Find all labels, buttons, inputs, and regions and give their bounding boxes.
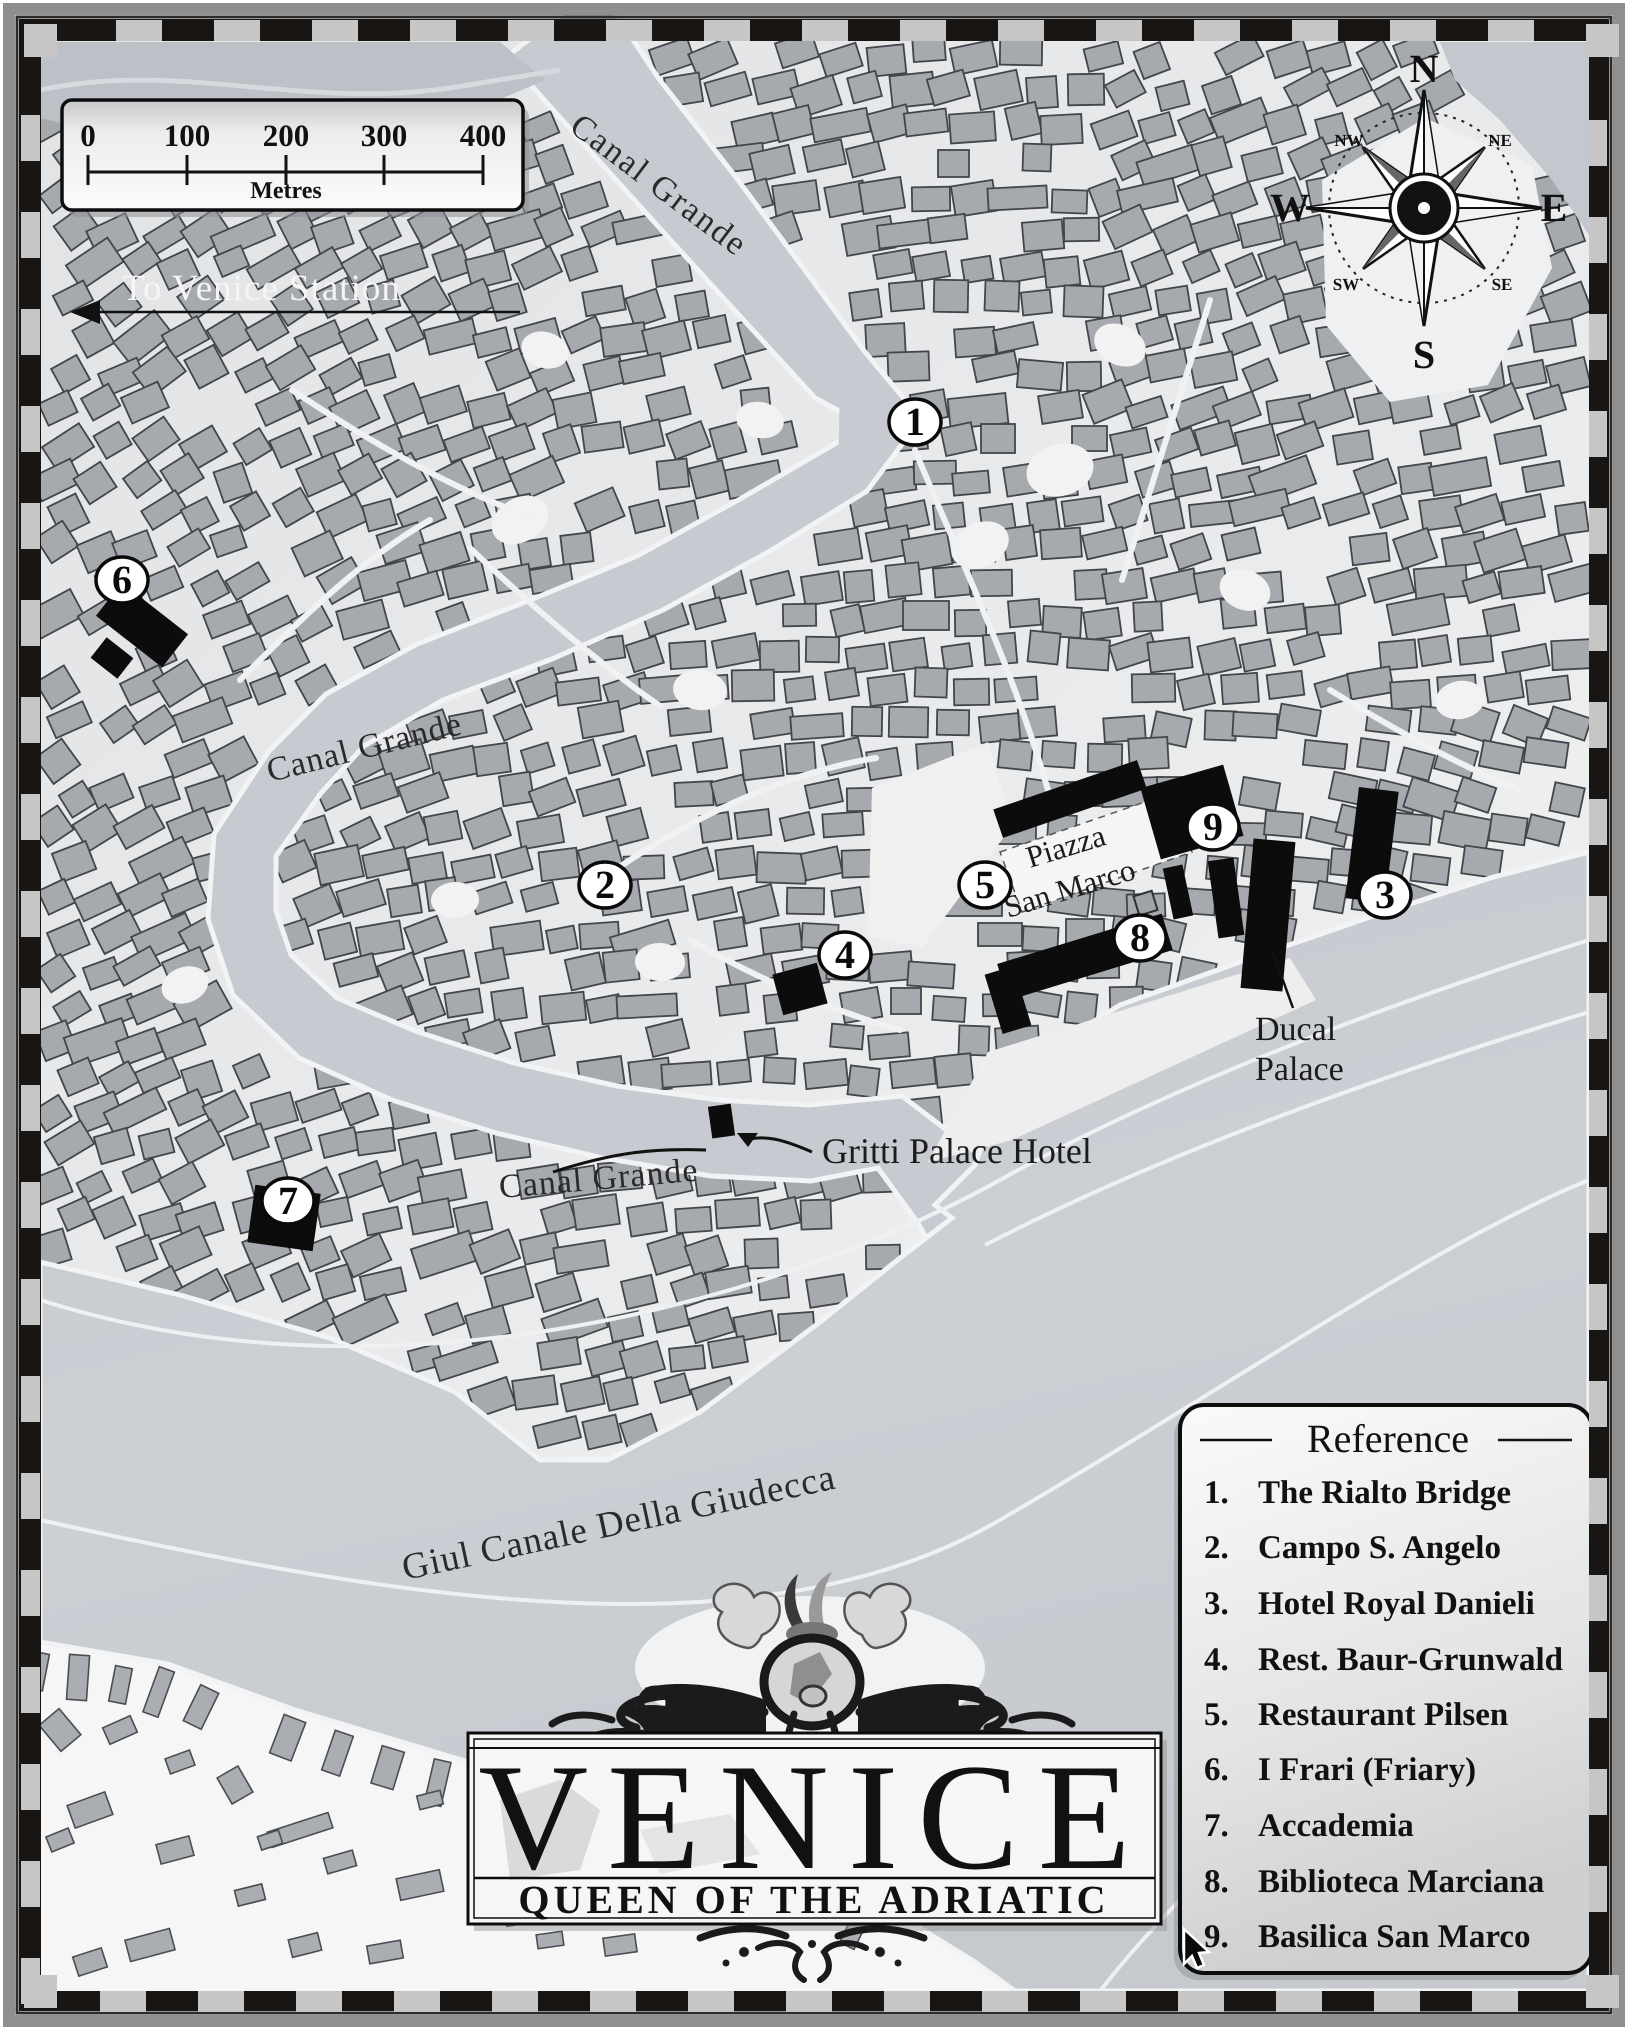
svg-text:6: 6 bbox=[112, 557, 132, 602]
svg-text:SE: SE bbox=[1492, 275, 1513, 294]
svg-text:Basilica San Marco: Basilica San Marco bbox=[1258, 1919, 1531, 1955]
svg-text:200: 200 bbox=[263, 118, 310, 153]
svg-text:Hotel Royal Danieli: Hotel Royal Danieli bbox=[1258, 1586, 1535, 1622]
svg-text:NW: NW bbox=[1334, 131, 1363, 150]
svg-text:9: 9 bbox=[1203, 804, 1223, 849]
svg-text:1.: 1. bbox=[1204, 1475, 1229, 1511]
svg-text:Accademia: Accademia bbox=[1258, 1808, 1414, 1844]
svg-text:Restaurant Pilsen: Restaurant Pilsen bbox=[1258, 1697, 1508, 1733]
svg-text:3: 3 bbox=[1375, 872, 1395, 917]
svg-text:400: 400 bbox=[460, 118, 507, 153]
svg-text:VENICE: VENICE bbox=[478, 1733, 1149, 1901]
svg-text:W: W bbox=[1270, 185, 1310, 230]
svg-text:SW: SW bbox=[1333, 275, 1359, 294]
svg-text:4.: 4. bbox=[1204, 1642, 1229, 1678]
svg-text:7.: 7. bbox=[1204, 1808, 1229, 1844]
svg-text:2.: 2. bbox=[1204, 1530, 1229, 1566]
svg-text:E: E bbox=[1541, 185, 1568, 230]
svg-text:To Venice Station: To Venice Station bbox=[122, 268, 401, 309]
svg-text:Campo S. Angelo: Campo S. Angelo bbox=[1258, 1530, 1501, 1566]
svg-text:7: 7 bbox=[278, 1178, 298, 1223]
svg-text:The Rialto Bridge: The Rialto Bridge bbox=[1258, 1475, 1511, 1511]
svg-text:Ducal: Ducal bbox=[1255, 1011, 1336, 1048]
svg-text:0: 0 bbox=[80, 118, 96, 153]
svg-text:Gritti Palace Hotel: Gritti Palace Hotel bbox=[822, 1131, 1092, 1171]
svg-text:N: N bbox=[1410, 46, 1439, 91]
svg-text:NE: NE bbox=[1488, 131, 1512, 150]
svg-text:S: S bbox=[1413, 332, 1435, 377]
svg-text:I Frari (Friary): I Frari (Friary) bbox=[1258, 1752, 1476, 1788]
svg-text:4: 4 bbox=[835, 932, 855, 977]
svg-text:1: 1 bbox=[905, 399, 925, 444]
svg-text:Reference: Reference bbox=[1307, 1416, 1469, 1461]
svg-text:300: 300 bbox=[361, 118, 408, 153]
svg-text:Biblioteca Marciana: Biblioteca Marciana bbox=[1258, 1864, 1544, 1900]
svg-text:8: 8 bbox=[1130, 915, 1150, 960]
svg-text:Palace: Palace bbox=[1255, 1051, 1344, 1088]
svg-text:Metres: Metres bbox=[250, 178, 322, 204]
svg-text:QUEEN OF THE ADRIATIC: QUEEN OF THE ADRIATIC bbox=[518, 1877, 1109, 1922]
svg-text:5.: 5. bbox=[1204, 1697, 1229, 1733]
svg-text:100: 100 bbox=[164, 118, 211, 153]
svg-text:8.: 8. bbox=[1204, 1864, 1229, 1900]
svg-text:5: 5 bbox=[975, 862, 995, 907]
svg-text:2: 2 bbox=[595, 862, 615, 907]
svg-text:6.: 6. bbox=[1204, 1752, 1229, 1788]
svg-text:3.: 3. bbox=[1204, 1586, 1229, 1622]
svg-text:Rest. Baur-Grunwald: Rest. Baur-Grunwald bbox=[1258, 1642, 1563, 1678]
